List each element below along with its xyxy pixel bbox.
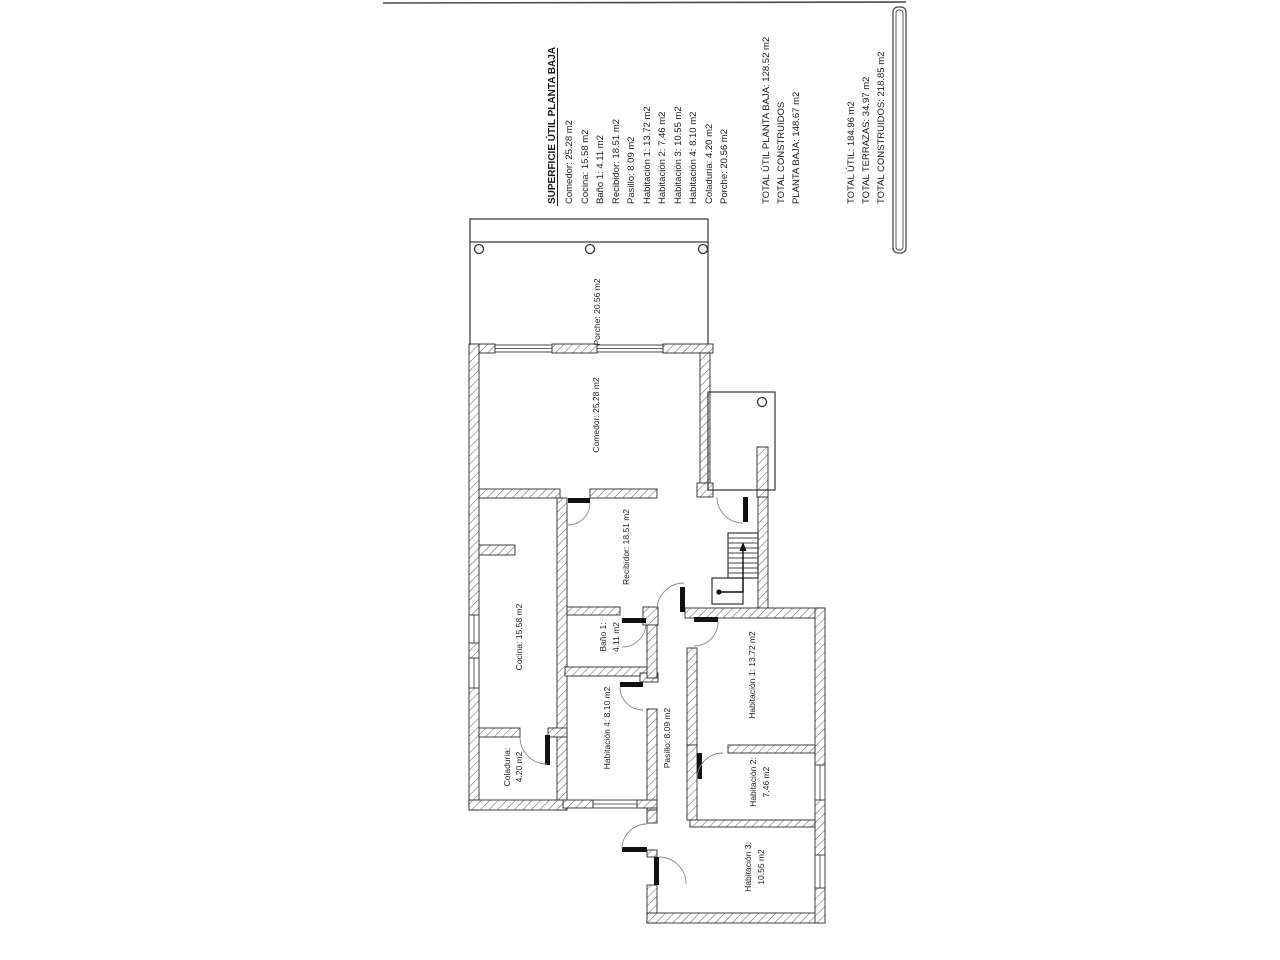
window-habitacion2: [815, 765, 825, 800]
door-back-exit: [622, 824, 647, 852]
label-pasillo: Pasillo: 8.09 m2: [662, 707, 672, 768]
window-comedor-1: [495, 345, 552, 352]
door-habitacion4: [620, 682, 643, 710]
total-construidos-line: TOTAL CONSTRUIDOS: [776, 102, 787, 204]
label-habitacion4: Habitación 4: 8.10 m2: [602, 686, 612, 769]
legend-item-habitacion2: Habitación 2: 7.46 m2: [657, 112, 668, 204]
staircase: [712, 533, 758, 604]
legend-item-comedor: Comedor: 25.28 m2: [564, 120, 575, 204]
legend-item-pasillo: Pasillo: 8.09 m2: [626, 136, 637, 204]
legend-item-habitacion4: Habitación 4: 8.10 m2: [688, 112, 699, 204]
floor-plan-svg: SUPERFICIE ÚTIL PLANTA BAJA Comedor: 25.…: [0, 0, 1280, 960]
label-coladuria-2: 4.20 m2: [514, 751, 524, 782]
label-habitacion2-2: 7.46 m2: [761, 766, 771, 797]
label-bano-2: 4.11 m2: [611, 622, 621, 652]
window-cocina-1: [469, 615, 479, 643]
scanned-floor-plan-page: SUPERFICIE ÚTIL PLANTA BAJA Comedor: 25.…: [0, 0, 1280, 960]
legend-item-cocina: Cocina: 15.58 m2: [580, 130, 591, 204]
door-comedor-recibidor: [568, 498, 590, 525]
legend-item-recibidor: Recibidor: 18.51 m2: [611, 119, 622, 204]
label-comedor: Comedor: 25.28 m2: [591, 377, 601, 452]
label-coladuria-1: Coladuria:: [502, 748, 512, 787]
door-coladuria: [520, 735, 550, 765]
legend-item-habitacion3: Habitación 3: 10.55 m2: [673, 106, 684, 204]
legend-block: SUPERFICIE ÚTIL PLANTA BAJA Comedor: 25.…: [545, 47, 730, 206]
door-habitacion2: [697, 753, 723, 779]
porch-column-icon: [475, 245, 484, 254]
porch-column-icon: [699, 245, 708, 254]
label-habitacion3-2: 10.55 m2: [756, 849, 766, 885]
total-construidos-value: PLANTA BAJA: 148.67 m2: [791, 92, 802, 204]
total-util: TOTAL ÚTIL: 184.96 m2: [846, 101, 857, 204]
label-cocina: Cocina: 15.58 m2: [514, 603, 524, 670]
label-porche: Porche: 20.56 m2: [592, 278, 602, 345]
window-habitacion3: [815, 855, 825, 888]
door-bano: [622, 618, 646, 647]
total-util-planta-baja: TOTAL ÚTIL PLANTA BAJA: 128.52 m2: [761, 37, 772, 204]
label-habitacion1: Habitación 1: 13.72 m2: [747, 631, 757, 719]
door-pasillo: [657, 583, 685, 612]
annex-column-icon: [758, 398, 767, 407]
total-construidos: TOTAL CONSTRUIDOS: 218.85 m2: [876, 52, 887, 204]
label-bano-1: Baño 1:: [598, 622, 608, 651]
label-recibidor: Recibidor: 18.51 m2: [621, 509, 631, 585]
label-habitacion3-1: Habitación 3:: [743, 842, 753, 892]
legend-title: SUPERFICIE ÚTIL PLANTA BAJA: [545, 47, 558, 204]
legend-item-porche: Porche: 20.56 m2: [719, 129, 730, 204]
totals-planta-baja-block: TOTAL ÚTIL PLANTA BAJA: 128.52 m2 TOTAL …: [761, 37, 802, 204]
door-habitacion1: [694, 617, 718, 646]
totals-general-block: TOTAL ÚTIL: 184.96 m2 TOTAL TERRAZAS: 34…: [846, 52, 887, 204]
door-habitacion3: [654, 857, 686, 885]
legend-item-habitacion1: Habitación 1: 13.72 m2: [642, 106, 653, 204]
porch-structure: [470, 219, 708, 344]
total-terrazas: TOTAL TERRAZAS: 34.97 m2: [861, 77, 872, 204]
legend-item-bano: Baño 1: 4.11 m2: [595, 135, 606, 204]
label-habitacion2-1: Habitación 2:: [748, 757, 758, 807]
window-habitacion4: [593, 800, 637, 808]
window-cocina-2: [469, 658, 479, 688]
legend-item-coladuria: Coladuria: 4.20 m2: [704, 124, 715, 204]
door-entry: [717, 497, 748, 523]
porch-column-icon: [586, 245, 595, 254]
window-comedor-2: [597, 345, 663, 352]
